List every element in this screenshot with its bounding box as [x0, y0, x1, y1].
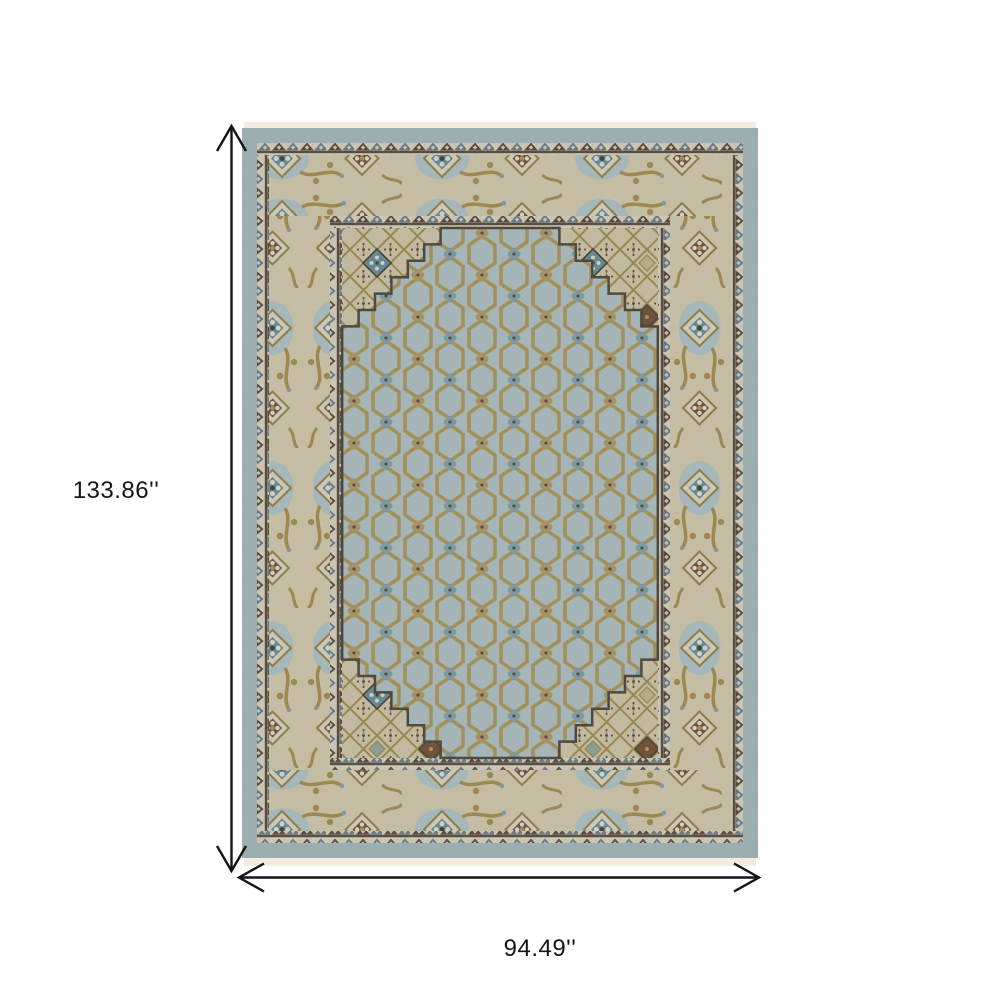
- rug-top-fringe: [244, 122, 756, 129]
- rug-bottom-fringe: [244, 857, 756, 866]
- height-dimension-label: 133.86'': [60, 477, 172, 505]
- width-dimension-label: 94.49'': [487, 935, 593, 963]
- width-dimension-line: [239, 864, 759, 892]
- product-dimension-image: 133.86'' 94.49'': [0, 0, 1000, 1000]
- rug-texture-overlay-light: [242, 128, 758, 858]
- rug-image: [242, 122, 758, 866]
- height-dimension-line: [217, 126, 246, 871]
